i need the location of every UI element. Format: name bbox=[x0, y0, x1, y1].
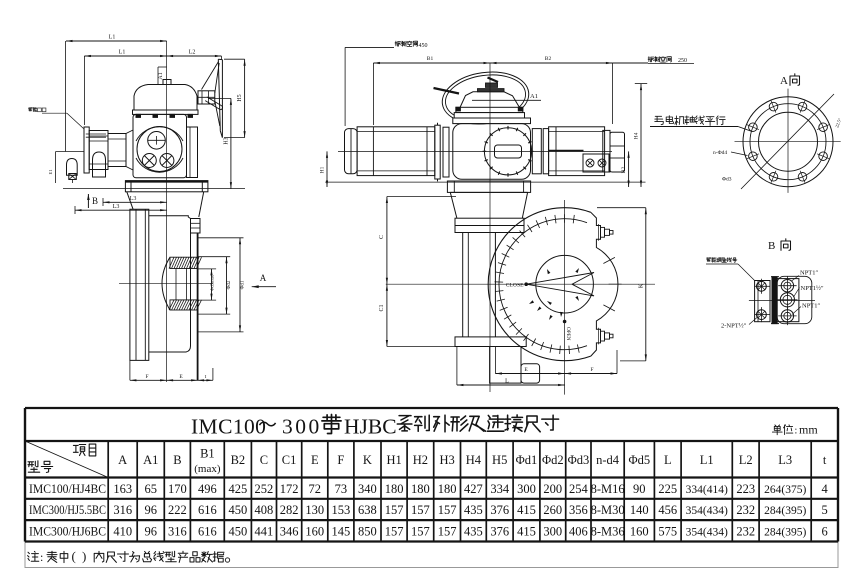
svg-text:L1: L1 bbox=[109, 35, 116, 41]
svg-text:(max): (max) bbox=[194, 463, 221, 475]
svg-text:264(375): 264(375) bbox=[764, 484, 806, 496]
svg-text:172: 172 bbox=[280, 482, 299, 496]
svg-text:Φd3: Φd3 bbox=[722, 177, 732, 183]
svg-text:140: 140 bbox=[630, 503, 649, 517]
svg-text:450: 450 bbox=[419, 43, 428, 49]
svg-text:L3: L3 bbox=[113, 204, 120, 210]
svg-text:CLOSE: CLOSE bbox=[506, 283, 524, 289]
svg-text:223: 223 bbox=[736, 482, 755, 496]
svg-text:8-M16: 8-M16 bbox=[591, 482, 625, 496]
svg-text:L: L bbox=[664, 453, 672, 467]
svg-text:2-NPT½″: 2-NPT½″ bbox=[721, 323, 747, 330]
svg-text:A1: A1 bbox=[143, 453, 158, 467]
svg-text:410: 410 bbox=[113, 524, 132, 538]
svg-text:L2: L2 bbox=[739, 453, 753, 467]
svg-text:A: A bbox=[260, 273, 267, 283]
svg-text:340: 340 bbox=[358, 482, 377, 496]
svg-text:96: 96 bbox=[145, 503, 158, 517]
svg-text:B: B bbox=[92, 196, 98, 206]
svg-text:130: 130 bbox=[305, 503, 324, 517]
svg-text:(: ( bbox=[72, 549, 76, 564]
svg-text:376: 376 bbox=[490, 503, 509, 517]
svg-text:8-M36: 8-M36 bbox=[591, 524, 625, 538]
svg-text:334(414): 334(414) bbox=[686, 484, 728, 496]
svg-text:435: 435 bbox=[464, 524, 483, 538]
svg-text:IMC100: IMC100 bbox=[191, 415, 266, 439]
svg-text:6: 6 bbox=[821, 524, 827, 538]
svg-text:E: E bbox=[311, 453, 319, 467]
svg-text:B: B bbox=[173, 453, 181, 467]
svg-text:456: 456 bbox=[658, 503, 677, 517]
svg-text:Φd5: Φd5 bbox=[628, 453, 650, 467]
svg-text:H5: H5 bbox=[237, 94, 243, 101]
svg-text:n-d4: n-d4 bbox=[596, 453, 620, 467]
svg-text:441: 441 bbox=[255, 524, 274, 538]
svg-text:435: 435 bbox=[464, 503, 483, 517]
svg-text:C1: C1 bbox=[379, 304, 385, 311]
svg-text:616: 616 bbox=[198, 524, 217, 538]
svg-text:n-Φd4: n-Φd4 bbox=[713, 150, 727, 156]
svg-text:354(434): 354(434) bbox=[686, 505, 728, 517]
svg-text:NPT1½″: NPT1½″ bbox=[801, 285, 824, 292]
svg-text:406: 406 bbox=[569, 524, 588, 538]
svg-text:316: 316 bbox=[113, 503, 132, 517]
svg-text:C1: C1 bbox=[282, 453, 297, 467]
svg-text:C: C bbox=[379, 235, 385, 239]
svg-text:222: 222 bbox=[168, 503, 187, 517]
svg-text:H2: H2 bbox=[413, 453, 428, 467]
svg-text:300: 300 bbox=[282, 415, 322, 439]
svg-text:334: 334 bbox=[490, 482, 510, 496]
svg-text:225: 225 bbox=[658, 482, 677, 496]
svg-text:K: K bbox=[638, 283, 644, 288]
svg-text:170: 170 bbox=[168, 482, 187, 496]
svg-text:157: 157 bbox=[438, 524, 457, 538]
svg-text:72: 72 bbox=[309, 482, 322, 496]
svg-text:415: 415 bbox=[517, 524, 536, 538]
svg-text:H2: H2 bbox=[621, 166, 627, 173]
svg-text:H1: H1 bbox=[386, 453, 401, 467]
svg-text:t: t bbox=[823, 453, 827, 467]
svg-text:B1: B1 bbox=[200, 447, 215, 461]
svg-text:232: 232 bbox=[736, 524, 755, 538]
svg-text:H5: H5 bbox=[492, 453, 507, 467]
svg-text:180: 180 bbox=[438, 482, 457, 496]
svg-text:157: 157 bbox=[411, 524, 430, 538]
svg-text:L: L bbox=[505, 378, 509, 385]
svg-text:284(395): 284(395) bbox=[764, 526, 806, 538]
svg-text:A: A bbox=[780, 75, 788, 87]
svg-text:260: 260 bbox=[543, 503, 562, 517]
svg-text:157: 157 bbox=[385, 524, 404, 538]
svg-text:496: 496 bbox=[198, 482, 217, 496]
svg-text:Φd1: Φd1 bbox=[516, 453, 538, 467]
svg-text:616: 616 bbox=[198, 503, 217, 517]
svg-text:B2: B2 bbox=[545, 56, 552, 62]
svg-text:H3: H3 bbox=[439, 453, 454, 467]
svg-text:H1: H1 bbox=[320, 166, 326, 173]
svg-text:A1: A1 bbox=[530, 93, 538, 100]
svg-text:163: 163 bbox=[113, 482, 132, 496]
svg-text:E1: E1 bbox=[48, 170, 53, 175]
svg-text:408: 408 bbox=[255, 503, 274, 517]
svg-text:H3: H3 bbox=[223, 137, 229, 144]
svg-text:L3: L3 bbox=[130, 196, 137, 202]
svg-text:450: 450 bbox=[229, 503, 248, 517]
svg-text:346: 346 bbox=[280, 524, 299, 538]
svg-text:8-M30: 8-M30 bbox=[591, 503, 625, 517]
svg-text:B2: B2 bbox=[231, 453, 246, 467]
svg-text:450: 450 bbox=[229, 524, 248, 538]
svg-text:C: C bbox=[260, 453, 268, 467]
svg-text:157: 157 bbox=[411, 503, 430, 517]
svg-text:L3: L3 bbox=[778, 453, 792, 467]
svg-text:5: 5 bbox=[821, 503, 827, 517]
svg-text:mm: mm bbox=[799, 423, 818, 437]
svg-text:): ) bbox=[82, 549, 86, 564]
svg-text:A1: A1 bbox=[158, 72, 164, 79]
svg-text:252: 252 bbox=[255, 482, 274, 496]
svg-text:232: 232 bbox=[736, 503, 755, 517]
svg-text:L1: L1 bbox=[119, 50, 126, 56]
svg-text:90: 90 bbox=[633, 482, 646, 496]
svg-text:254: 254 bbox=[569, 482, 589, 496]
svg-text:4: 4 bbox=[821, 482, 828, 496]
svg-text:Φd3: Φd3 bbox=[568, 453, 590, 467]
svg-text:316: 316 bbox=[168, 524, 187, 538]
svg-text:300: 300 bbox=[543, 524, 562, 538]
svg-text:NPT1″: NPT1″ bbox=[800, 270, 819, 277]
svg-text:427: 427 bbox=[464, 482, 483, 496]
svg-text:180: 180 bbox=[385, 482, 404, 496]
svg-text:Φd2: Φd2 bbox=[227, 280, 232, 289]
svg-text:157: 157 bbox=[385, 503, 404, 517]
svg-text:H4: H4 bbox=[466, 453, 482, 467]
svg-text:157: 157 bbox=[438, 503, 457, 517]
svg-text:IMC300/HJ6BC: IMC300/HJ6BC bbox=[29, 524, 106, 538]
svg-text:73: 73 bbox=[335, 482, 348, 496]
svg-text:284(395): 284(395) bbox=[764, 505, 806, 517]
svg-text:OPEN: OPEN bbox=[565, 327, 571, 341]
svg-text:F: F bbox=[145, 374, 148, 380]
svg-text:Φd5max: Φd5max bbox=[210, 274, 215, 291]
svg-text:160: 160 bbox=[630, 524, 649, 538]
svg-text:376: 376 bbox=[490, 524, 509, 538]
svg-text:145: 145 bbox=[332, 524, 351, 538]
svg-text:L1: L1 bbox=[700, 453, 714, 467]
svg-text:B1: B1 bbox=[427, 56, 434, 62]
svg-text:300: 300 bbox=[517, 482, 536, 496]
svg-text:96: 96 bbox=[145, 524, 158, 538]
svg-text:IMC300/HJ5.5BC: IMC300/HJ5.5BC bbox=[29, 503, 106, 517]
svg-text:～: ～ bbox=[258, 415, 277, 436]
svg-text:180: 180 bbox=[411, 482, 430, 496]
svg-text:Φd1: Φd1 bbox=[241, 280, 246, 289]
svg-text:354(434): 354(434) bbox=[686, 526, 728, 538]
svg-text:H4: H4 bbox=[633, 132, 639, 139]
svg-text:200: 200 bbox=[543, 482, 562, 496]
svg-text:575: 575 bbox=[658, 524, 677, 538]
svg-text:356: 356 bbox=[569, 503, 588, 517]
svg-text:638: 638 bbox=[358, 503, 377, 517]
svg-text:A: A bbox=[118, 453, 127, 467]
svg-text:IMC100/HJ4BC: IMC100/HJ4BC bbox=[29, 482, 106, 496]
svg-text:HJBC: HJBC bbox=[344, 415, 397, 439]
svg-text:L2: L2 bbox=[189, 50, 196, 56]
svg-text:F: F bbox=[337, 453, 344, 467]
svg-text:415: 415 bbox=[517, 503, 536, 517]
svg-text:B: B bbox=[768, 240, 775, 252]
svg-text:NPT1″: NPT1″ bbox=[802, 303, 821, 310]
svg-text:160: 160 bbox=[305, 524, 324, 538]
svg-text::: : bbox=[40, 550, 43, 564]
svg-text:425: 425 bbox=[229, 482, 248, 496]
svg-text:282: 282 bbox=[280, 503, 299, 517]
svg-text:Φd2: Φd2 bbox=[542, 453, 564, 467]
svg-text:F: F bbox=[590, 367, 593, 373]
svg-text:65: 65 bbox=[145, 482, 158, 496]
svg-text::: : bbox=[795, 426, 798, 437]
svg-text:850: 850 bbox=[358, 524, 377, 538]
svg-text:K: K bbox=[363, 453, 372, 467]
svg-text:153: 153 bbox=[332, 503, 351, 517]
